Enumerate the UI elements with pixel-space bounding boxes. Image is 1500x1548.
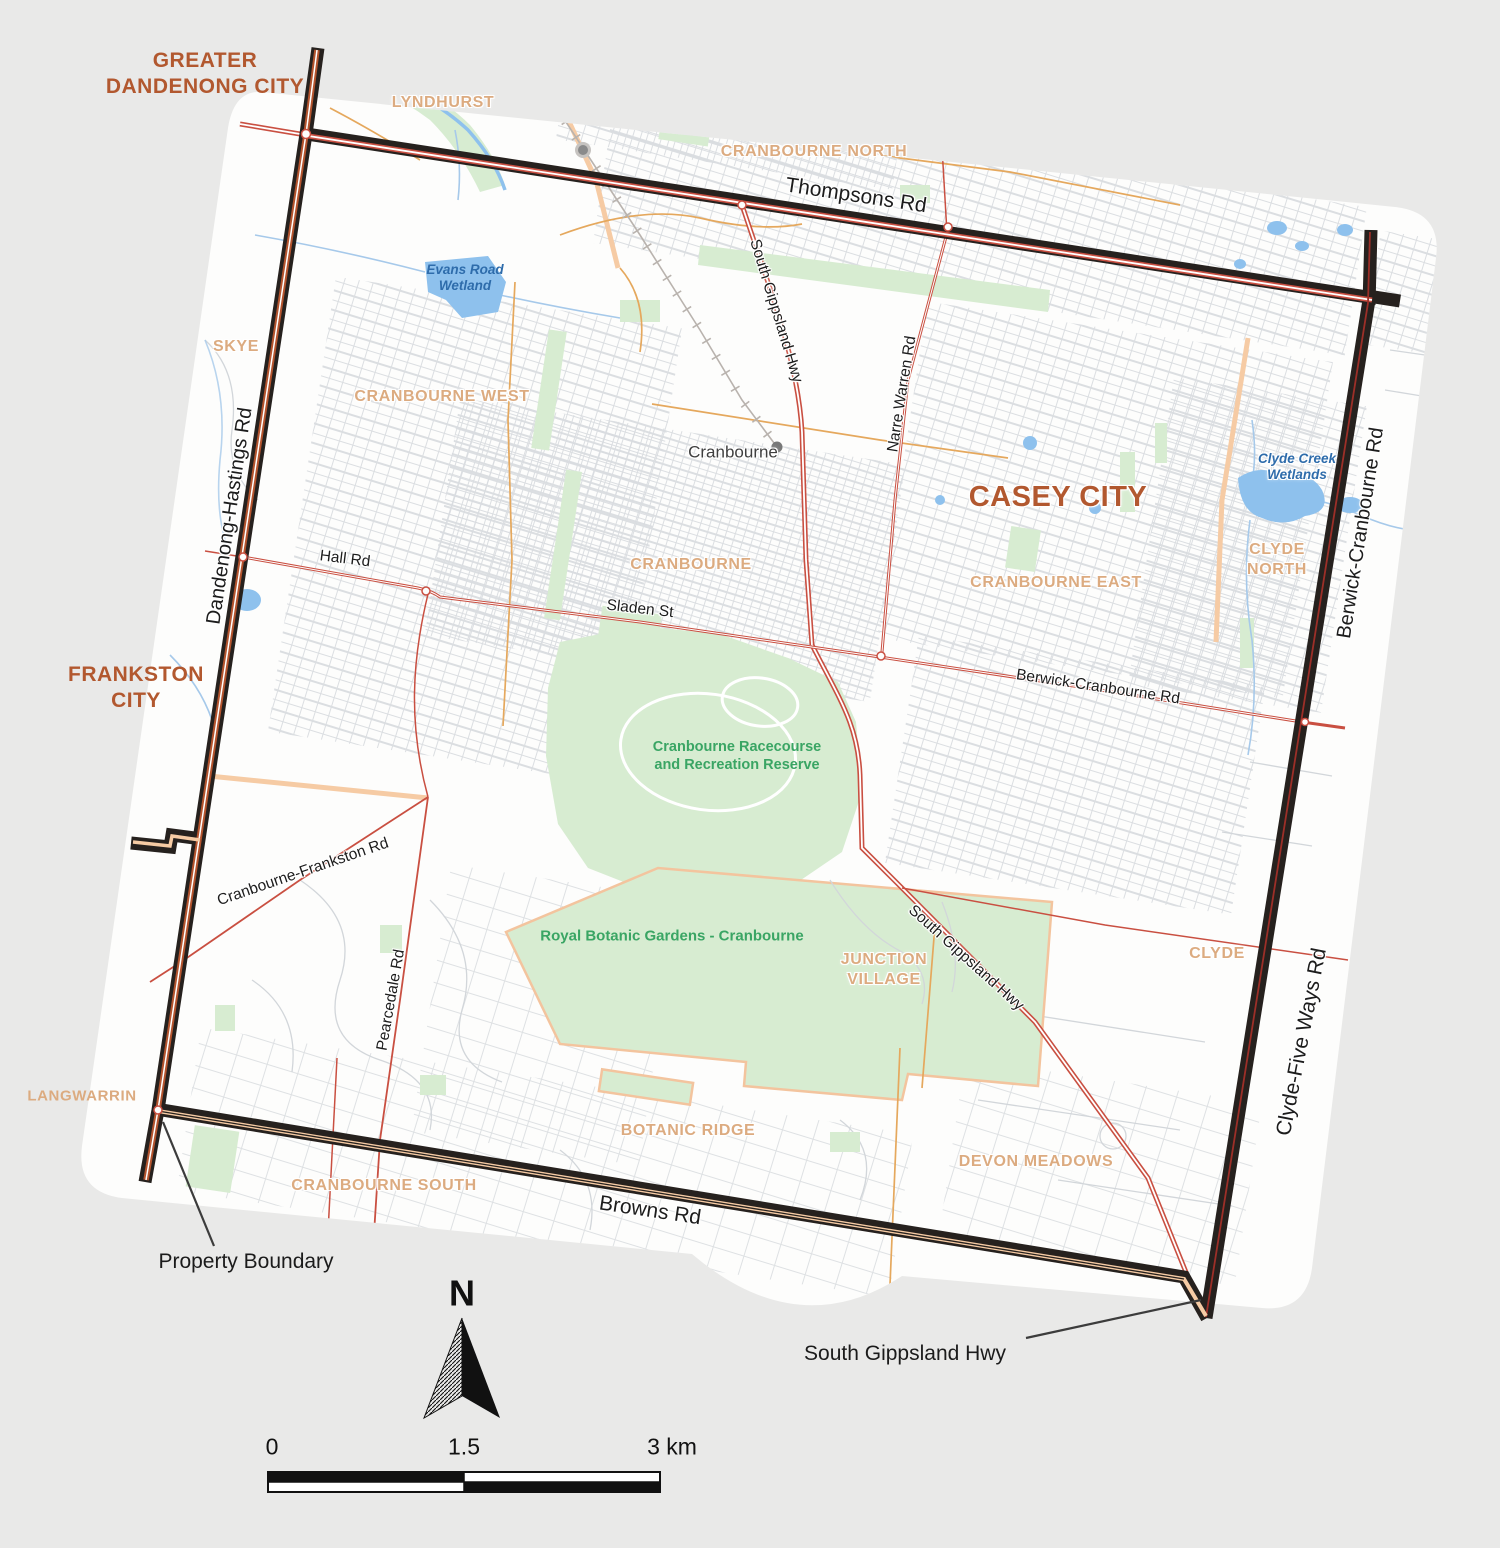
map-canvas: [0, 0, 1500, 1548]
cranbourne-town-dot: [772, 442, 783, 453]
railway-station-dot: [577, 144, 590, 157]
map-page: GREATERDANDENONG CITYFRANKSTONCITYCASEY …: [0, 0, 1500, 1548]
scale-bar: [268, 1472, 660, 1492]
